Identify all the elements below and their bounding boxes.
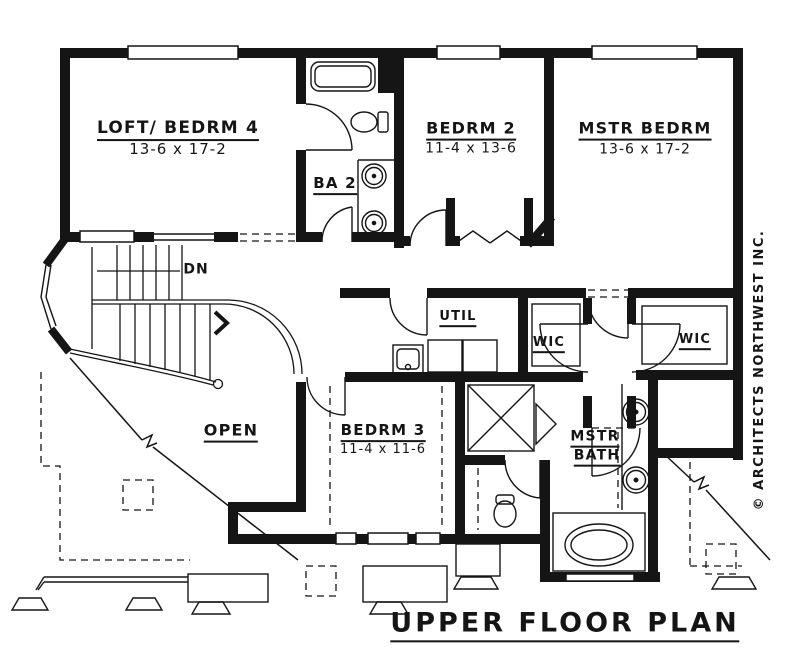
toilet-icon [494, 495, 516, 527]
utility-sink-icon [393, 345, 423, 373]
room-name-text: UTIL [439, 309, 476, 327]
room-name-text: LOFT/ BEDRM 4 [97, 118, 259, 141]
sink-icon [362, 211, 386, 235]
room-name-text: MSTR [570, 429, 619, 448]
room-label-wic-right: WIC [679, 333, 711, 347]
room-label-open: OPEN [204, 423, 258, 440]
sink-icon [362, 164, 386, 188]
room-label-util: UTIL [439, 310, 476, 324]
porch-post-icon [454, 577, 498, 589]
room-name-text: BATH [574, 448, 621, 467]
room-label-loft-bedrm4: LOFT/ BEDRM 4 [97, 120, 259, 138]
shower-icon [468, 385, 556, 451]
room-dims-mstr-bedrm: 13-6 x 17-2 [599, 143, 691, 158]
room-label-ba2: BA 2 [313, 176, 357, 192]
roof-break-lines [70, 358, 770, 560]
room-name-text: BA 2 [313, 174, 357, 195]
upper-floor-plan: LOFT/ BEDRM 4 13-6 x 17-2 BA 2 BEDRM 2 1… [0, 0, 800, 669]
soaking-tub-icon [553, 513, 645, 571]
toilet-icon [351, 112, 388, 132]
dryer-icon [463, 340, 497, 372]
porch-post-icon [192, 602, 230, 614]
sink-icon [623, 467, 649, 493]
break-squiggle-icon [694, 477, 709, 489]
room-name-text: OPEN [204, 421, 258, 443]
room-name-text: BEDRM 3 [341, 421, 426, 442]
porch-post-icon [12, 598, 48, 610]
bay-window [41, 239, 69, 352]
room-name-text: WIC [533, 335, 565, 353]
room-dims-bedrm2: 11-4 x 13-6 [425, 142, 517, 157]
room-label-mstr-bedrm: MSTR BEDRM [579, 121, 712, 138]
room-label-wic-left: WIC [533, 336, 565, 350]
room-name-text: WIC [679, 332, 711, 350]
room-dims-loft-bedrm4: 13-6 x 17-2 [129, 142, 227, 158]
room-dims-bedrm3: 11-4 x 11-6 [340, 443, 426, 457]
drawing-title: UPPER FLOOR PLAN [390, 609, 739, 642]
stair-direction-arrow-icon [215, 312, 227, 334]
stair-direction-label: DN [183, 263, 208, 278]
room-label-mstr-bath-line1: MSTR [570, 430, 619, 445]
washer-icon [428, 340, 462, 372]
sink-icon [623, 399, 649, 425]
break-squiggle-icon [142, 435, 157, 447]
room-name-text: BEDRM 2 [426, 119, 516, 141]
room-label-bedrm2: BEDRM 2 [426, 121, 516, 138]
architect-credit: © ARCHITECTS NORTHWEST INC. [753, 230, 767, 511]
room-name-text: MSTR BEDRM [579, 119, 712, 141]
porch-post-icon [126, 598, 162, 610]
room-label-mstr-bath-line2: BATH [574, 449, 621, 464]
room-label-bedrm3: BEDRM 3 [341, 423, 426, 439]
porch-post-icon [712, 577, 756, 589]
